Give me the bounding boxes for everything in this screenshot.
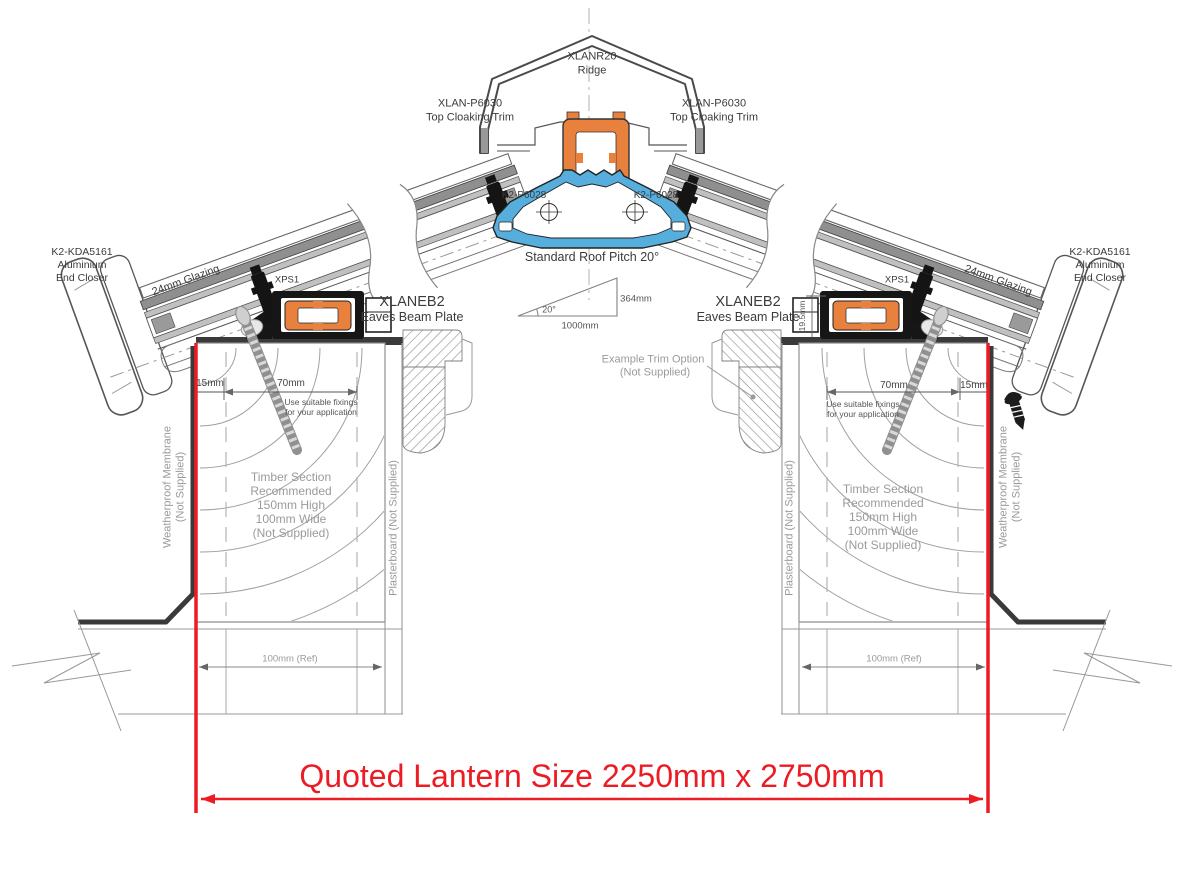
end-closer-part-label-left: K2-KDA5161 [51, 247, 112, 258]
timber-note-left-1: Timber Section [251, 471, 331, 483]
roof-lantern-section-drawing: XLANR20 Ridge XLAN-P6030 Top Cloaking Tr… [0, 0, 1184, 872]
end-closer-name-label-right: End Closer [1074, 273, 1126, 284]
fixing-zone-label-left: 70mm [277, 379, 305, 389]
timber-note-left-4: 100mm Wide [256, 513, 327, 525]
timber-note-right-2: Recommended [842, 497, 923, 509]
ridge-support-profile [493, 170, 691, 248]
trim-option-label-line2: (Not Supplied) [620, 368, 690, 379]
timber-note-left-5: (Not Supplied) [253, 527, 330, 539]
pitch-run-label: 1000mm [562, 321, 599, 331]
break-line [74, 610, 121, 731]
trim-dark-band [140, 165, 517, 310]
plasterboard-label-left: Plasterboard (Not Supplied) [389, 460, 400, 596]
pitch-angle-label: 20° [542, 306, 556, 315]
xps1-label-left: XPS1 [275, 275, 299, 285]
timber-note-right-4: 100mm Wide [848, 525, 919, 537]
fixings-note-line2-left: for your application [285, 408, 357, 417]
plasterboard-label-right: Plasterboard (Not Supplied) [785, 460, 796, 596]
ridge-name-label: Ridge [578, 66, 607, 77]
quoted-size-label: Quoted Lantern Size 2250mm x 2750mm [299, 760, 884, 792]
membrane-label-line2-right: (Not Supplied) [1012, 452, 1023, 522]
trim-option-cap [403, 330, 462, 367]
eaves-name-label-left: Eaves Beam Plate [361, 311, 464, 324]
wall-ref-label-right: 100mm (Ref) [866, 654, 921, 664]
membrane-label-line2-left: (Not Supplied) [176, 452, 187, 522]
upstand-dim-label: 19.5mm [798, 301, 807, 332]
fixing-zone-label-right: 70mm [880, 381, 908, 391]
trim-option-label-line1: Example Trim Option [602, 355, 705, 366]
timber-note-right-1: Timber Section [843, 483, 923, 495]
membrane-label-line1-right: Weatherproof Membrane [999, 426, 1010, 548]
end-closer-material-label-right: Aluminium [1075, 260, 1124, 271]
pitch-note-label: Standard Roof Pitch 20° [525, 251, 659, 264]
timber-note-left-3: 150mm High [257, 499, 325, 511]
ridge-part-label: XLANR20 [568, 52, 617, 63]
edge-offset-label-left: 15mm [196, 379, 224, 389]
wall-ref-label-left: 100mm (Ref) [262, 654, 317, 664]
ridge-bracket-label-right: K2-P6028 [634, 191, 678, 201]
cloaking-part-label-right: XLAN-P6030 [682, 99, 746, 110]
fixings-note-line1-left: Use suitable fixings [284, 398, 357, 407]
cloaking-part-label-left: XLAN-P6030 [438, 99, 502, 110]
ridge-bracket-label-left: K2-P6028 [502, 191, 546, 201]
end-closer-material-label-left: Aluminium [57, 260, 106, 271]
edge-offset-label-right: 15mm [960, 381, 988, 391]
trim-option-leg [403, 367, 445, 453]
membrane-label-line1-left: Weatherproof Membrane [163, 426, 174, 548]
end-closer-part-label-right: K2-KDA5161 [1069, 247, 1130, 258]
fixings-note-line1-right: Use suitable fixings [826, 400, 899, 409]
fixings-note-line2-right: for your application [827, 410, 899, 419]
end-closer-name-label-left: End Closer [56, 273, 108, 284]
cloaking-name-label-left: Top Cloaking Trim [426, 113, 514, 124]
eaves-part-label-right: XLANEB2 [715, 295, 780, 310]
xps1-label-right: XPS1 [885, 275, 909, 285]
timber-note-left-2: Recommended [250, 485, 331, 497]
cloaking-name-label-right: Top Cloaking Trim [670, 113, 758, 124]
timber-note-right-3: 150mm High [849, 511, 917, 523]
eaves-beam [272, 291, 364, 339]
pitch-triangle [518, 278, 617, 316]
pitch-rise-label: 364mm [620, 294, 652, 304]
timber-note-right-5: (Not Supplied) [845, 539, 922, 551]
eaves-part-label-left: XLANEB2 [379, 295, 444, 310]
eaves-name-label-right: Eaves Beam Plate [697, 311, 800, 324]
